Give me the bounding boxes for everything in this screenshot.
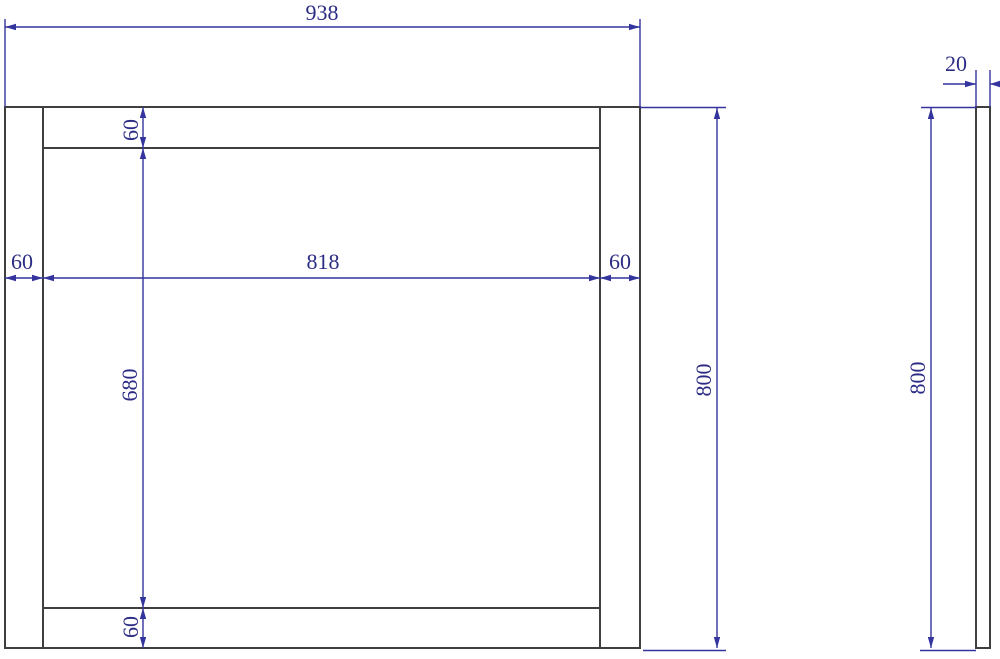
- dimension-side-thickness: 20: [943, 51, 1000, 107]
- dimension-overall-width: 938: [5, 0, 640, 107]
- front-view: [5, 107, 640, 648]
- dim-label-opening-height: 680: [117, 369, 142, 402]
- dim-label-overall-width: 938: [306, 0, 339, 25]
- arrowhead-down: [928, 637, 934, 648]
- dim-label-side-thickness: 20: [945, 51, 967, 76]
- technical-drawing: 938 60 818 60 60 680 60 800: [0, 0, 1000, 659]
- dimension-chain-horizontal: 60 818 60: [5, 249, 640, 281]
- arrowhead-left: [43, 275, 54, 281]
- arrowhead-right: [629, 275, 640, 281]
- arrowhead-down: [714, 637, 720, 648]
- side-view: [976, 107, 990, 648]
- dim-label-left-stile: 60: [11, 249, 33, 274]
- front-view-outer-outline: [5, 107, 640, 648]
- dimension-side-height: 800: [905, 108, 976, 651]
- arrowhead-up: [140, 107, 146, 118]
- arrowhead-right: [32, 275, 43, 281]
- arrowhead-left: [600, 275, 611, 281]
- arrowhead-left: [990, 81, 1000, 87]
- dim-label-opening-width: 818: [307, 249, 340, 274]
- dimension-chain-vertical: 60 680 60: [117, 107, 146, 648]
- arrowhead-right: [629, 24, 640, 30]
- dim-label-bottom-rail: 60: [118, 616, 143, 638]
- arrowhead-left: [5, 275, 16, 281]
- arrowhead-up: [140, 148, 146, 159]
- dimension-front-height: 800: [640, 108, 726, 651]
- side-view-outline: [976, 107, 990, 648]
- arrowhead-right: [589, 275, 600, 281]
- arrowhead-up: [928, 108, 934, 119]
- arrowhead-left: [5, 24, 16, 30]
- dim-label-right-stile: 60: [609, 249, 631, 274]
- dim-label-side-height: 800: [905, 362, 930, 395]
- arrowhead-right: [965, 81, 976, 87]
- arrowhead-up: [714, 108, 720, 119]
- dim-label-top-rail: 60: [118, 119, 143, 141]
- dim-label-front-height: 800: [691, 364, 716, 397]
- arrowhead-down: [140, 597, 146, 608]
